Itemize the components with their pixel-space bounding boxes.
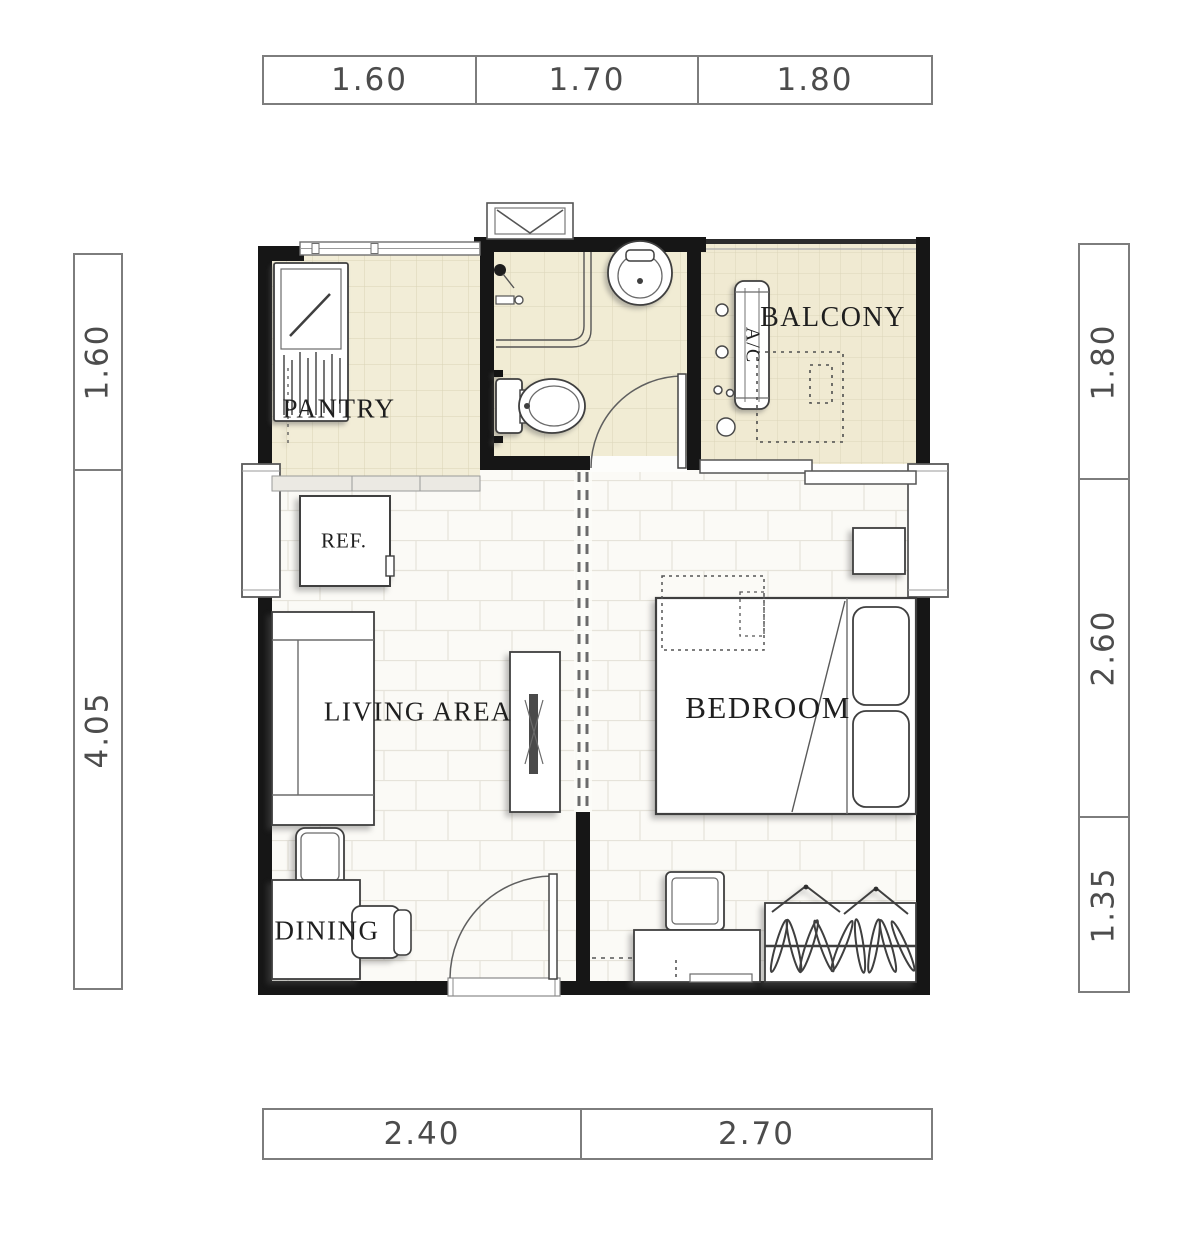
floor-plan-drawing (0, 0, 1200, 1258)
nightstand (853, 528, 905, 574)
refrigerator-label: REF. (321, 529, 367, 554)
dimension-cell: 2.60 (1080, 478, 1128, 816)
entrance-threshold (448, 978, 560, 996)
bottom-wall-right (560, 981, 930, 995)
dimension-bar-bottom: 2.40 2.70 (262, 1108, 933, 1160)
dimension-bar-right: 1.80 2.60 1.35 (1078, 243, 1130, 993)
balcony-label: BALCONY (760, 302, 906, 334)
bathroom-right-wall (687, 237, 701, 470)
shower-faucet (496, 296, 514, 304)
dimension-value: 1.80 (1086, 323, 1122, 400)
dimension-value: 4.05 (80, 691, 116, 768)
ac-label: A/C (741, 327, 764, 363)
top-left-wall-stub (258, 246, 304, 261)
dimension-value: 2.70 (718, 1116, 795, 1152)
balcony-railing (706, 239, 916, 244)
pillow (853, 711, 909, 807)
dimension-value: 1.70 (548, 62, 625, 98)
dimension-value: 2.60 (1086, 609, 1122, 686)
dimension-cell: 2.40 (264, 1110, 580, 1158)
bathroom-vent-window (487, 203, 573, 239)
floor-plan-canvas: PANTRY BALCONY LIVING AREA BEDROOM DININ… (0, 0, 1200, 1258)
shower-head (494, 264, 506, 276)
dimension-value: 1.60 (331, 62, 408, 98)
dining-label: DINING (275, 916, 380, 947)
sink-faucet (626, 250, 654, 261)
bedroom-label: BEDROOM (685, 690, 851, 726)
bathroom-sink (608, 241, 672, 305)
dimension-cell: 1.80 (1080, 245, 1128, 478)
pantry-counter-edge (272, 476, 480, 491)
pantry-label: PANTRY (282, 394, 395, 425)
dimension-cell: 4.05 (75, 469, 121, 988)
dimension-bar-left: 1.60 4.05 (73, 253, 123, 990)
living-bedroom-sliding-partition (574, 472, 592, 812)
living-area-label: LIVING AREA (324, 697, 512, 728)
right-wall-upper (916, 237, 930, 465)
dining-chair-top (296, 828, 344, 888)
bedroom-partition-wall (576, 812, 590, 995)
dimension-cell: 2.70 (580, 1110, 931, 1158)
dimension-value: 1.80 (776, 62, 853, 98)
dimension-cell: 1.60 (75, 255, 121, 469)
dimension-cell: 1.70 (475, 57, 697, 103)
pillow (853, 607, 909, 705)
dimension-cell: 1.80 (697, 57, 931, 103)
dimension-cell: 1.35 (1080, 816, 1128, 991)
dimension-cell: 1.60 (264, 57, 475, 103)
left-wall-upper (258, 246, 272, 465)
right-wall-lower (916, 597, 930, 995)
dimension-value: 1.35 (1086, 866, 1122, 943)
tv-console (510, 652, 560, 812)
dimension-bar-top: 1.60 1.70 1.80 (262, 55, 933, 105)
left-wall-lower (258, 597, 272, 995)
dimension-value: 2.40 (383, 1116, 460, 1152)
bathroom-left-wall (480, 237, 494, 470)
bathroom-bottom-wall (480, 456, 590, 470)
bottom-wall-left (258, 981, 448, 995)
bathroom-door-threshold (590, 456, 687, 472)
dimension-value: 1.60 (80, 323, 116, 400)
